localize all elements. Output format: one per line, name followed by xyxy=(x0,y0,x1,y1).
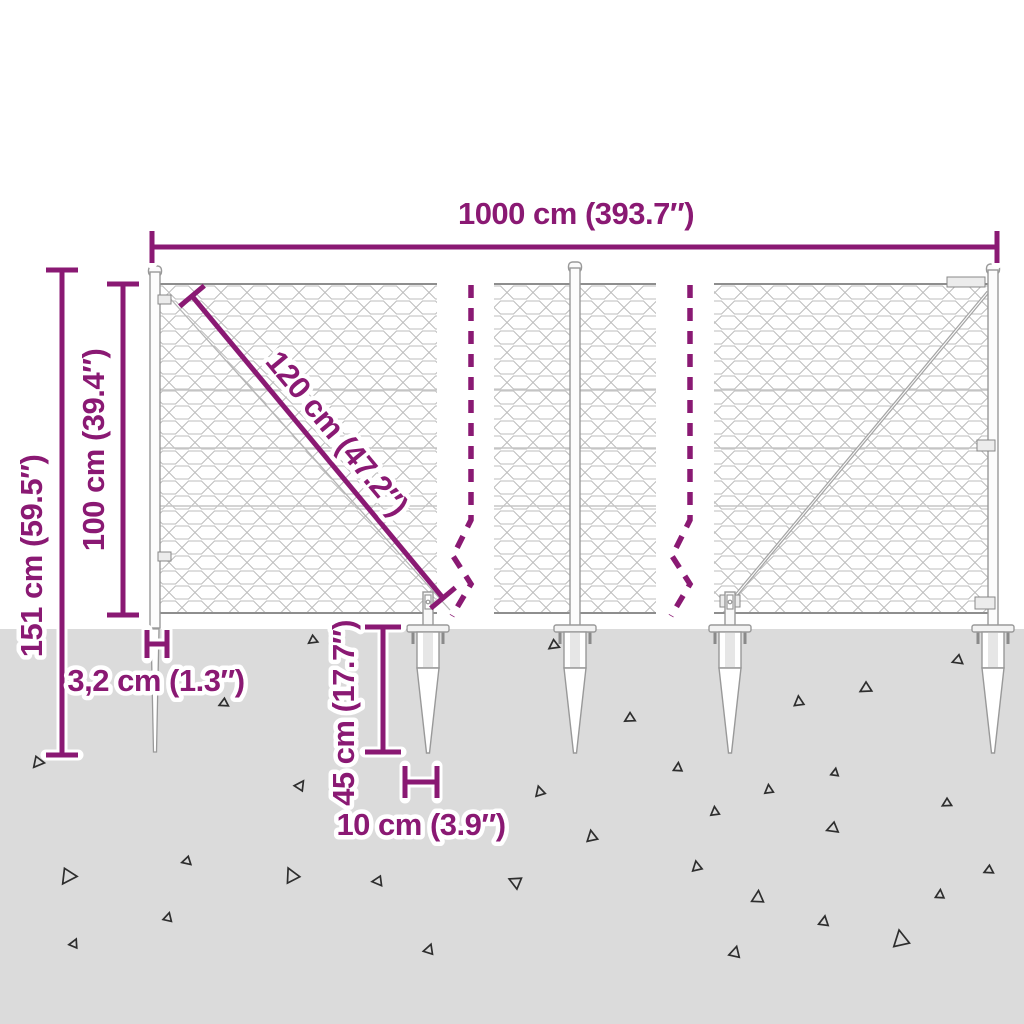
label-post-width: 3,2 cm (1.3″) xyxy=(67,663,244,698)
fence-post-middle xyxy=(569,262,582,628)
label-mesh-height: 100 cm (39.4″) xyxy=(76,349,111,552)
product-dimension-diagram: 1000 cm (393.7″) 151 cm (59.5″) 100 cm (… xyxy=(0,0,1024,1024)
label-spike-length: 45 cm (17.7″) xyxy=(326,620,361,806)
dim-total-width xyxy=(152,231,997,263)
label-total-width: 1000 cm (393.7″) xyxy=(458,196,694,231)
dim-mesh-height xyxy=(107,284,139,615)
brace-bracket-bottom xyxy=(975,597,995,609)
break-line-right xyxy=(671,285,690,616)
mesh-panel-right xyxy=(714,284,993,614)
label-overall-height: 151 cm (59.5″) xyxy=(14,455,49,658)
mesh-panel-left xyxy=(152,284,437,614)
break-line-left xyxy=(452,285,471,616)
brace-bracket-middle xyxy=(977,440,995,451)
fence-diagram-canvas: 1000 cm (393.7″) 151 cm (59.5″) 100 cm (… xyxy=(0,0,1024,1024)
label-spike-plate-width: 10 cm (3.9″) xyxy=(336,807,505,842)
brace-bracket-top xyxy=(947,277,985,287)
